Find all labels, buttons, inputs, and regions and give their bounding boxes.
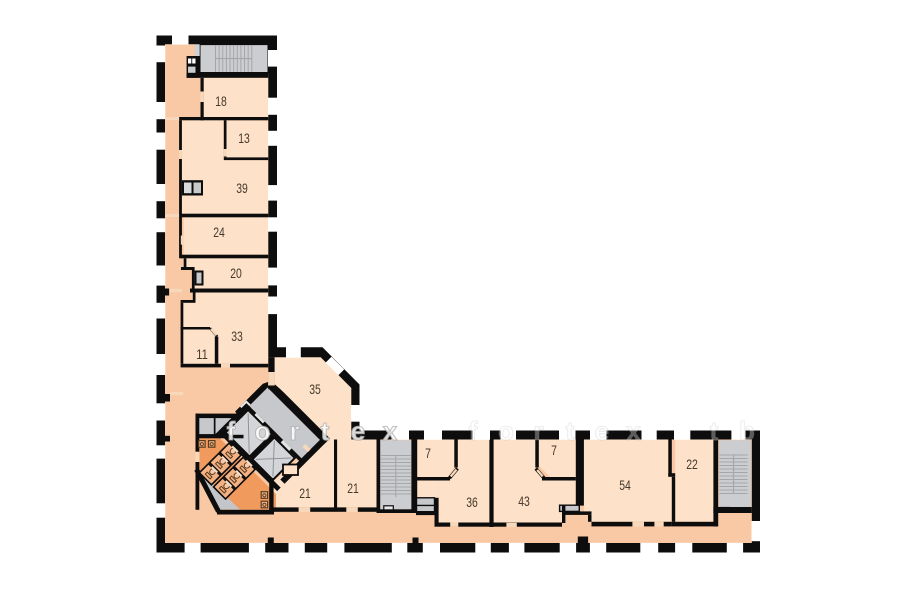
svg-text:54: 54 bbox=[619, 478, 631, 493]
svg-text:f: f bbox=[227, 416, 236, 446]
svg-text:24: 24 bbox=[213, 225, 225, 240]
svg-text:x: x bbox=[626, 416, 641, 446]
svg-text:39: 39 bbox=[236, 181, 248, 196]
svg-text:20: 20 bbox=[230, 266, 242, 281]
svg-text:t: t bbox=[710, 416, 719, 446]
svg-text:o: o bbox=[498, 416, 514, 446]
svg-text:36: 36 bbox=[466, 495, 478, 510]
svg-text:r: r bbox=[533, 416, 543, 446]
svg-text:t: t bbox=[566, 416, 575, 446]
svg-text:33: 33 bbox=[231, 329, 243, 344]
svg-text:13: 13 bbox=[238, 131, 250, 146]
svg-text:r: r bbox=[289, 416, 299, 446]
svg-text:22: 22 bbox=[686, 457, 698, 472]
svg-text:21: 21 bbox=[347, 481, 359, 496]
svg-text:o: o bbox=[255, 416, 271, 446]
svg-text:e: e bbox=[351, 416, 365, 446]
svg-text:35: 35 bbox=[309, 382, 321, 397]
svg-text:b: b bbox=[739, 416, 755, 446]
svg-text:x: x bbox=[383, 416, 398, 446]
svg-text:t: t bbox=[321, 416, 330, 446]
svg-text:f: f bbox=[469, 416, 478, 446]
svg-text:18: 18 bbox=[215, 94, 227, 109]
svg-text:43: 43 bbox=[518, 494, 530, 509]
svg-text:21: 21 bbox=[299, 486, 311, 501]
svg-text:7: 7 bbox=[425, 446, 431, 461]
svg-text:7: 7 bbox=[551, 443, 557, 458]
svg-text:e: e bbox=[595, 416, 609, 446]
svg-text:11: 11 bbox=[196, 347, 208, 362]
